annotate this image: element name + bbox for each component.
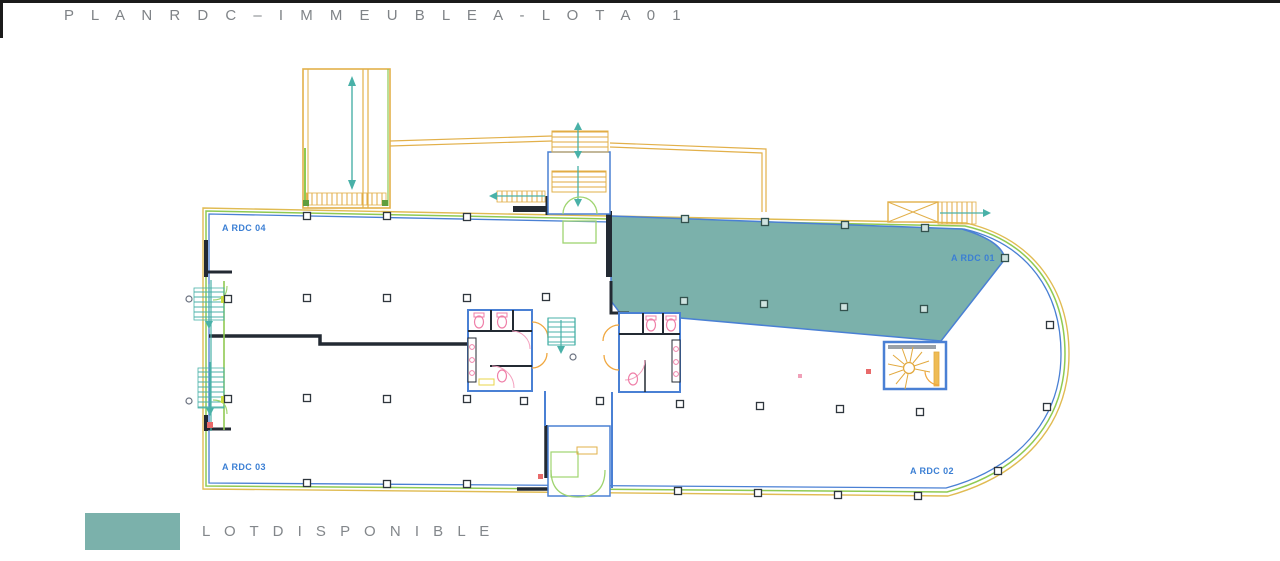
lot-label-a-rdc-01[interactable]: A RDC 01 bbox=[951, 253, 995, 263]
exterior-ramp-left bbox=[194, 280, 228, 431]
column-circle bbox=[186, 296, 192, 302]
column-circle bbox=[570, 354, 576, 360]
column-circle bbox=[186, 398, 192, 404]
threshold-marker bbox=[207, 422, 213, 428]
door-swing-icon bbox=[603, 325, 619, 341]
lot-label-a-rdc-02: A RDC 02 bbox=[910, 466, 954, 476]
central-stair-icon bbox=[548, 318, 575, 354]
floorplan-drawing: A RDC 04 A RDC 03 A RDC 01 A RDC 02 bbox=[0, 0, 1280, 561]
door-swing-icon bbox=[532, 353, 547, 368]
lot-label-a-rdc-04: A RDC 04 bbox=[222, 223, 266, 233]
exterior-ramp-tower bbox=[303, 69, 390, 208]
lot-label-a-rdc-03: A RDC 03 bbox=[222, 462, 266, 472]
legend-swatch bbox=[85, 513, 180, 550]
floorplan-page: P L A N R D C – I M M E U B L E A - L O … bbox=[0, 0, 1280, 561]
door-swing-icon bbox=[532, 322, 548, 338]
core-block-left bbox=[468, 310, 532, 391]
marker-dot bbox=[798, 374, 802, 378]
exterior-stair-topright bbox=[888, 202, 991, 224]
door-swing-icon bbox=[604, 355, 619, 370]
legend: L O T D I S P O N I B L E bbox=[85, 513, 494, 550]
legend-label: L O T D I S P O N I B L E bbox=[202, 523, 494, 540]
